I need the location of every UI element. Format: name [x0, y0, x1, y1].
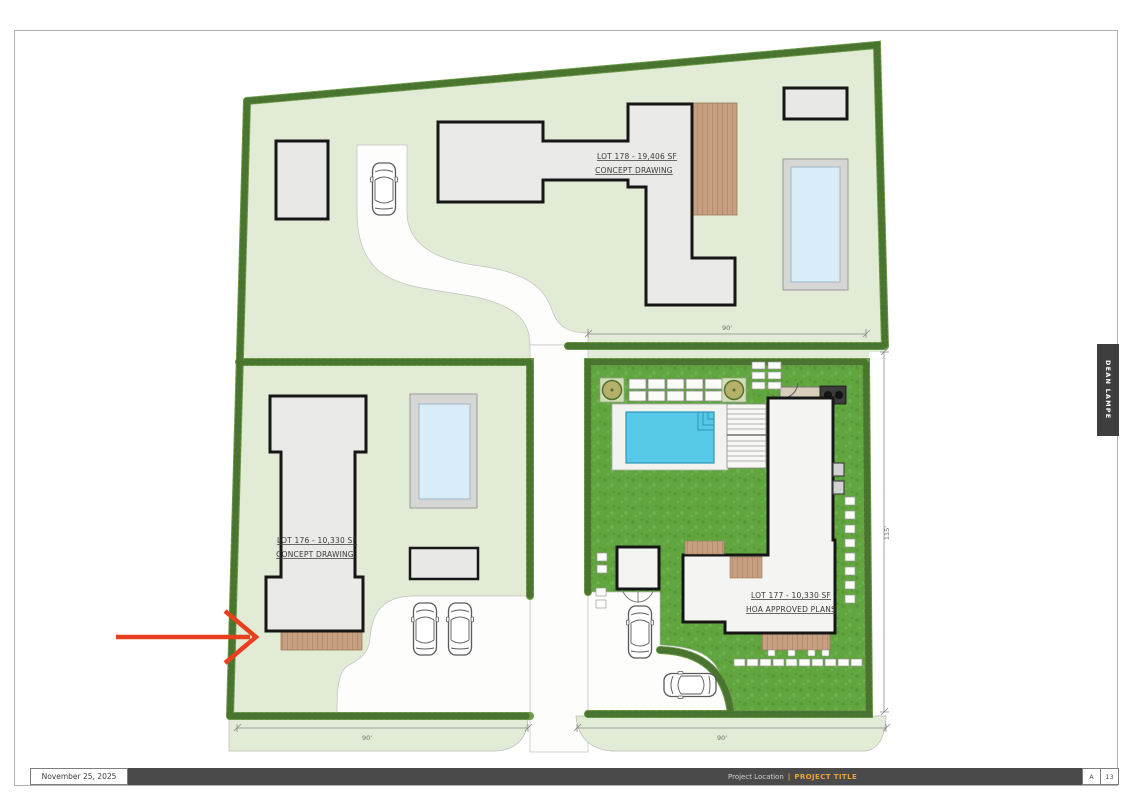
lot-177-status: HOA APPROVED PLANS: [746, 605, 836, 614]
dim-lot177-right: 115': [883, 526, 891, 540]
dim-bottom-left: 90': [362, 734, 372, 742]
patio-wood: [730, 557, 762, 578]
lot-178-wood-deck: [693, 103, 737, 215]
lot-176-status: CONCEPT DRAWING: [276, 550, 354, 559]
lot-176-wood-deck: [281, 631, 362, 650]
dim-lot177-top: 90': [722, 324, 732, 332]
equipment-box: [833, 481, 844, 494]
footer-separator: |: [788, 773, 791, 781]
lot-177-wood-deck: [762, 633, 830, 650]
footer-title-bar: Project Location | PROJECT TITLE: [128, 768, 1082, 785]
dim-bottom-right: 90': [717, 734, 727, 742]
lot-178-pool: [783, 159, 848, 290]
lot-176-house: [266, 396, 366, 631]
footer-date: November 25, 2025: [30, 768, 128, 785]
footer-title: Project Location | PROJECT TITLE: [728, 768, 857, 785]
car: [447, 603, 474, 655]
equipment-box: [833, 463, 844, 476]
car: [664, 672, 716, 699]
car: [371, 163, 398, 215]
car: [627, 606, 654, 658]
lot-176-label: LOT 176 - 10,330 SF: [277, 536, 357, 545]
annotation-arrow: [116, 611, 256, 663]
car: [412, 603, 439, 655]
site-plan-drawing: LOT 178 - 19,406 SF CONCEPT DRAWING LOT …: [0, 0, 1133, 800]
lot-177-pool: [612, 404, 728, 470]
sheet-letter-box: A: [1082, 768, 1101, 785]
sheet-page: { "page": { "date": "November 25, 2025",…: [0, 0, 1133, 800]
patio-wood: [685, 541, 724, 554]
lot-176-pool: [410, 394, 477, 508]
sheet-number-box: 13: [1100, 768, 1119, 785]
lot-177-stairs: [727, 404, 766, 468]
lot-178-garage: [276, 141, 328, 219]
lot-176-spa-pad: [410, 548, 478, 579]
center-road: [530, 345, 588, 752]
lot-178-cabana: [784, 88, 847, 119]
lot-177-label: LOT 177 - 10,330 SF: [751, 591, 831, 600]
lot-177-garage: [617, 547, 659, 589]
project-title-label: PROJECT TITLE: [794, 773, 857, 781]
planter-tree: [722, 378, 746, 402]
side-tab[interactable]: DEAN LAMPE: [1097, 344, 1119, 436]
lot-178-label: LOT 178 - 19,406 SF: [597, 152, 677, 161]
lot-178-status: CONCEPT DRAWING: [595, 166, 673, 175]
project-location-label: Project Location: [728, 773, 784, 781]
planter-tree: [600, 378, 624, 402]
